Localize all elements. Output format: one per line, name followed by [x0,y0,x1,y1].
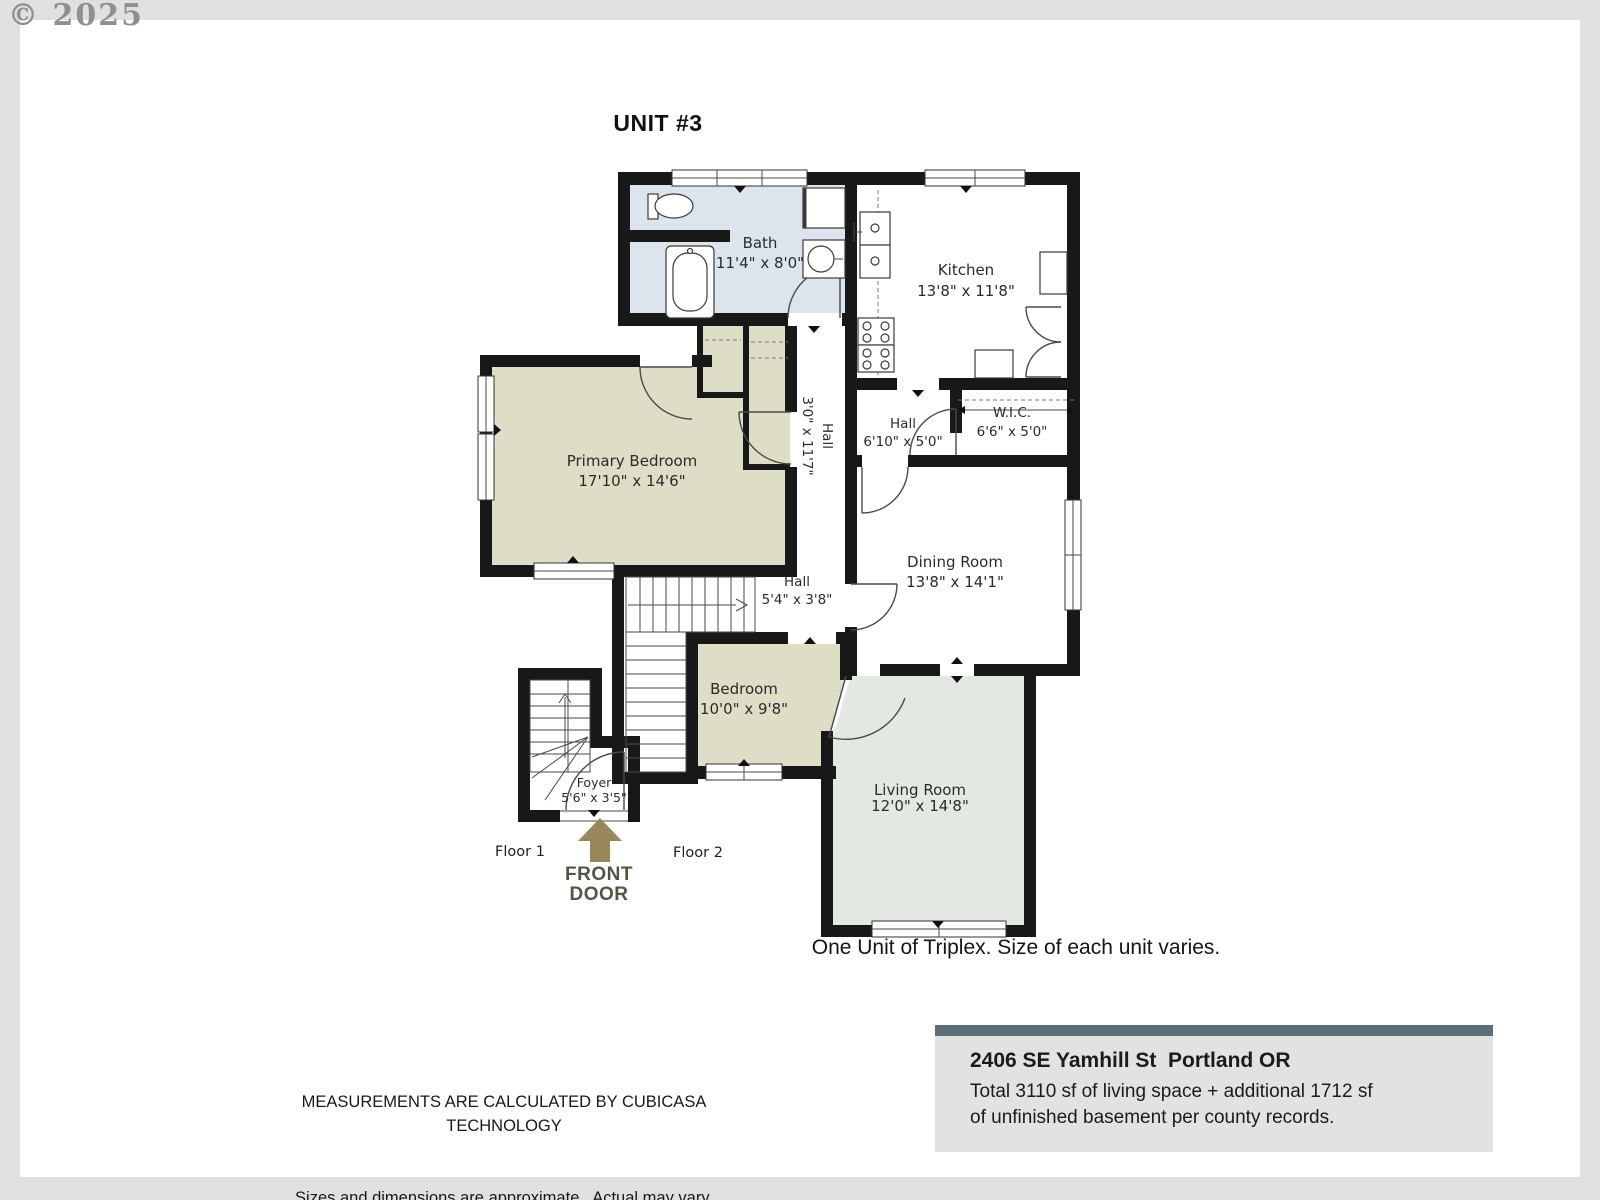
hall-corridor-label: 3'0" x 11'7" Hall [799,396,835,475]
bath-name: Bath [743,234,778,252]
disclaimer-line2: Sizes and dimensions are approximate. Ac… [254,1186,754,1200]
measurement-disclaimer: MEASUREMENTS ARE CALCULATED BY CUBICASA … [254,1042,754,1200]
primary-bedroom-window-left1 [478,376,494,432]
shower-icon [803,188,845,228]
hall-lower-name: Hall [784,574,810,590]
kitchen-closet-double-doors [1026,307,1061,377]
kitchen-label: Kitchen 13'8" x 11'8" [917,261,1015,300]
address-card-accent-bar [935,1025,1493,1036]
property-detail-line1: Total 3110 sf of living space + addition… [970,1079,1483,1105]
floor2-label: Floor 2 [673,845,723,861]
floorplan-page: © 2025 UNIT #3 [0,0,1600,1200]
bedroom-name: Bedroom [710,680,778,698]
disclaimer-line1: MEASUREMENTS ARE CALCULATED BY CUBICASA … [254,1090,754,1138]
primary-bedroom-dims: 17'10" x 14'6" [578,472,685,490]
wic-dims: 6'6" x 5'0" [977,424,1048,440]
kitchen-name: Kitchen [938,261,994,279]
address-card-body: 2406 SE Yamhill St Portland OR Total 311… [935,1036,1493,1152]
bedroom-window [706,764,782,780]
kitchen-island-icon [975,350,1013,378]
floor1-label: Floor 1 [495,844,545,860]
front-door-arrow-icon [578,818,622,862]
bathtub-icon [666,246,714,318]
primary-bedroom-window-bottom [534,563,614,579]
stove-icon [858,318,894,372]
bath-dims: 11'4" x 8'0" [716,254,804,272]
foyer-dims: 5'6" x 3'5" [561,790,627,805]
front-door-label-line2: DOOR [570,884,629,905]
kitchen-sink-icon [854,212,890,278]
dining-door-upper [862,467,908,513]
dining-room-name: Dining Room [907,553,1003,571]
hall-upper-name: Hall [890,416,916,432]
hall-corridor-dims: 3'0" x 11'7" [799,396,815,475]
primary-bedroom-name: Primary Bedroom [567,452,698,470]
dining-room-window [1065,500,1081,610]
hall-corridor-name: Hall [819,423,835,449]
fridge-icon [1040,252,1067,294]
bath-sink-icon [803,240,845,278]
bath-window [672,170,807,186]
property-detail-line2: of unfinished basement per county record… [970,1105,1483,1131]
floorplan-drawing: Bath 11'4" x 8'0" Kitchen 13'8" x 11'8" … [0,0,1600,1200]
primary-bedroom-window-left2 [478,434,494,500]
hall-lower-label: Hall 5'4" x 3'8" [762,574,833,608]
hall-upper-dims: 6'10" x 5'0" [863,434,942,450]
address-card: 2406 SE Yamhill St Portland OR Total 311… [935,1025,1493,1152]
wic-name: W.I.C. [993,405,1031,421]
dining-door-lower [851,584,897,630]
kitchen-dims: 13'8" x 11'8" [917,282,1015,300]
hall-upper-label: Hall 6'10" x 5'0" [863,416,942,450]
bedroom-dims: 10'0" x 9'8" [700,700,788,718]
living-room-dims: 12'0" x 14'8" [871,797,969,815]
hall-lower-dims: 5'4" x 3'8" [762,592,833,608]
toilet-icon [648,194,693,219]
dining-room-label: Dining Room 13'8" x 14'1" [906,553,1004,591]
living-room-label: Living Room 12'0" x 14'8" [871,781,969,815]
dining-room-dims: 13'8" x 14'1" [906,573,1004,591]
foyer-name: Foyer [577,775,612,790]
triplex-caption: One Unit of Triplex. Size of each unit v… [766,936,1266,960]
property-address: 2406 SE Yamhill St Portland OR [970,1049,1483,1073]
bath-partition-wall [630,230,730,242]
front-door-label-line1: FRONT [565,864,633,885]
kitchen-window [925,170,1025,186]
